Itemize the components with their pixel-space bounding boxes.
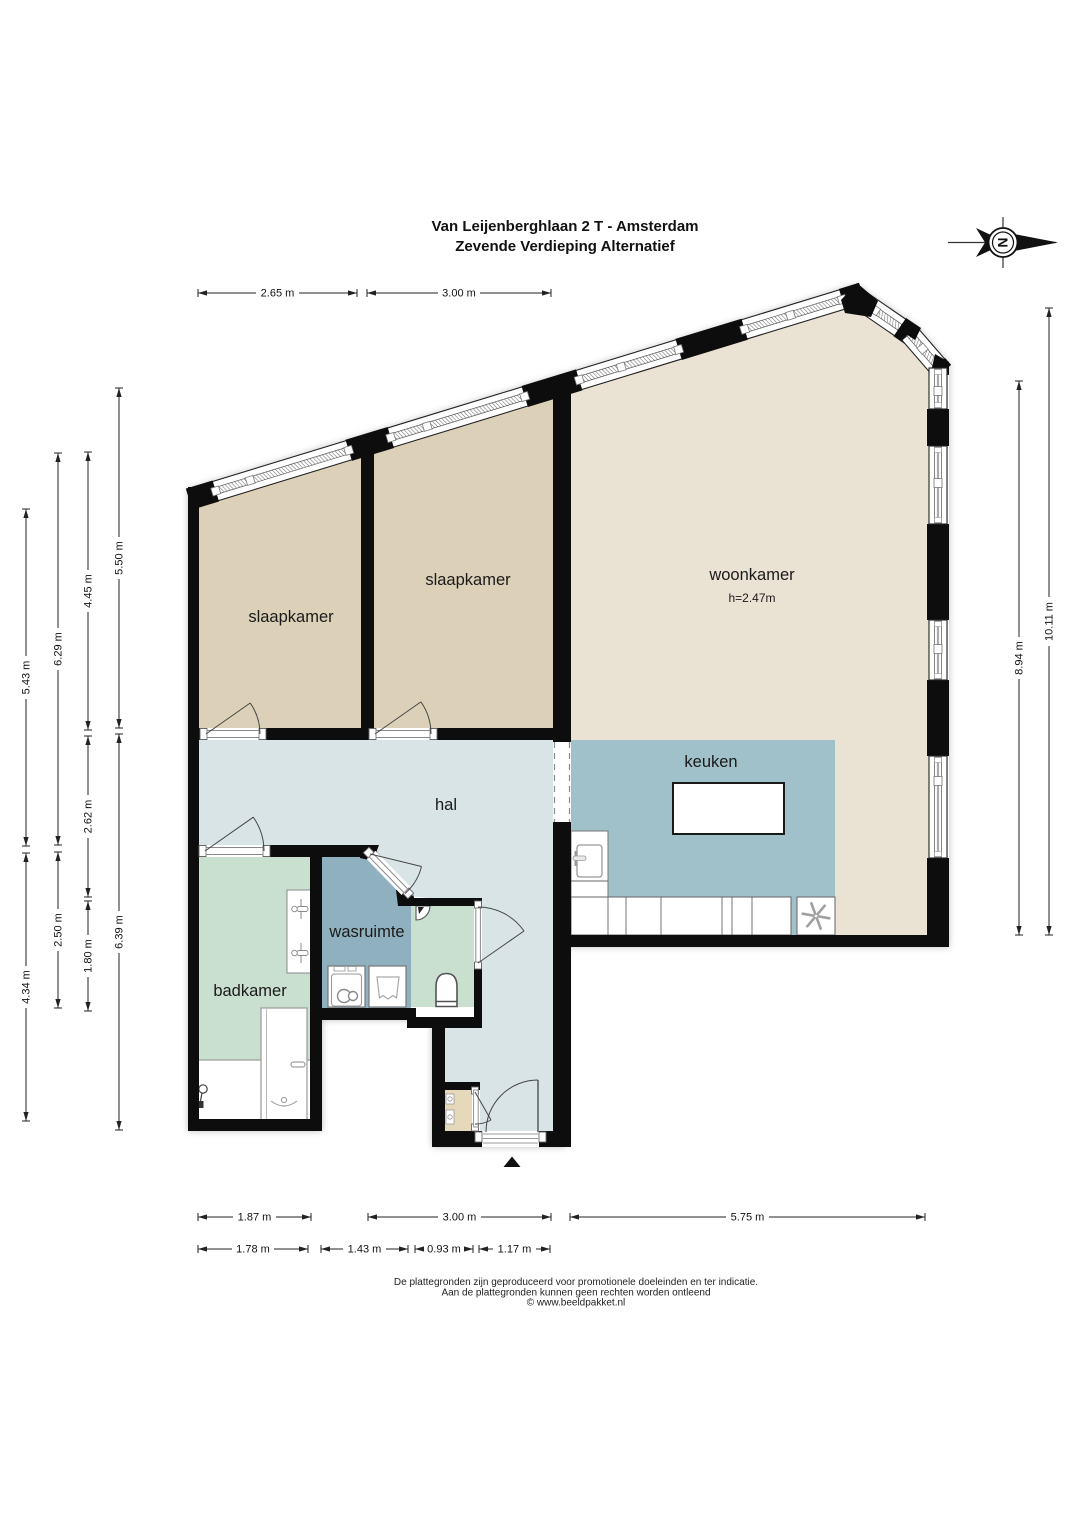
svg-text:1.43 m: 1.43 m — [348, 1244, 382, 1256]
svg-text:5.43 m: 5.43 m — [21, 661, 33, 695]
svg-text:0.93 m: 0.93 m — [427, 1244, 461, 1256]
svg-text:slaapkamer: slaapkamer — [425, 571, 511, 589]
svg-text:keuken: keuken — [684, 753, 737, 771]
svg-text:Zevende Verdieping Alternatief: Zevende Verdieping Alternatief — [455, 238, 676, 255]
svg-text:6.29 m: 6.29 m — [53, 632, 65, 666]
svg-text:woonkamer: woonkamer — [708, 566, 795, 584]
svg-text:N: N — [995, 237, 1011, 247]
svg-text:1.87 m: 1.87 m — [238, 1212, 272, 1224]
svg-text:3.00 m: 3.00 m — [442, 288, 476, 300]
svg-text:2.50 m: 2.50 m — [53, 913, 65, 947]
svg-text:8.94 m: 8.94 m — [1014, 641, 1026, 675]
svg-text:wasruimte: wasruimte — [328, 923, 404, 941]
svg-text:1.17 m: 1.17 m — [498, 1244, 532, 1256]
svg-text:slaapkamer: slaapkamer — [248, 608, 334, 626]
svg-text:Van Leijenberghlaan 2 T - Amst: Van Leijenberghlaan 2 T - Amsterdam — [431, 218, 698, 235]
svg-text:3.00 m: 3.00 m — [443, 1212, 477, 1224]
svg-text:h=2.47m: h=2.47m — [728, 591, 775, 605]
svg-text:2.62 m: 2.62 m — [83, 800, 95, 834]
svg-text:10.11 m: 10.11 m — [1044, 602, 1056, 641]
svg-text:© www.beeldpakket.nl: © www.beeldpakket.nl — [527, 1298, 626, 1309]
svg-text:4.45 m: 4.45 m — [83, 574, 95, 608]
svg-text:De plattegronden zijn geproduc: De plattegronden zijn geproduceerd voor … — [394, 1277, 758, 1288]
svg-text:5.75 m: 5.75 m — [731, 1212, 765, 1224]
svg-text:badkamer: badkamer — [213, 982, 287, 1000]
svg-text:hal: hal — [435, 796, 457, 814]
svg-text:5.50 m: 5.50 m — [114, 541, 126, 575]
svg-text:6.39 m: 6.39 m — [114, 915, 126, 949]
svg-text:2.65 m: 2.65 m — [261, 288, 295, 300]
svg-text:1.78 m: 1.78 m — [236, 1244, 270, 1256]
svg-text:1.80 m: 1.80 m — [83, 939, 95, 973]
svg-text:4.34 m: 4.34 m — [21, 970, 33, 1004]
